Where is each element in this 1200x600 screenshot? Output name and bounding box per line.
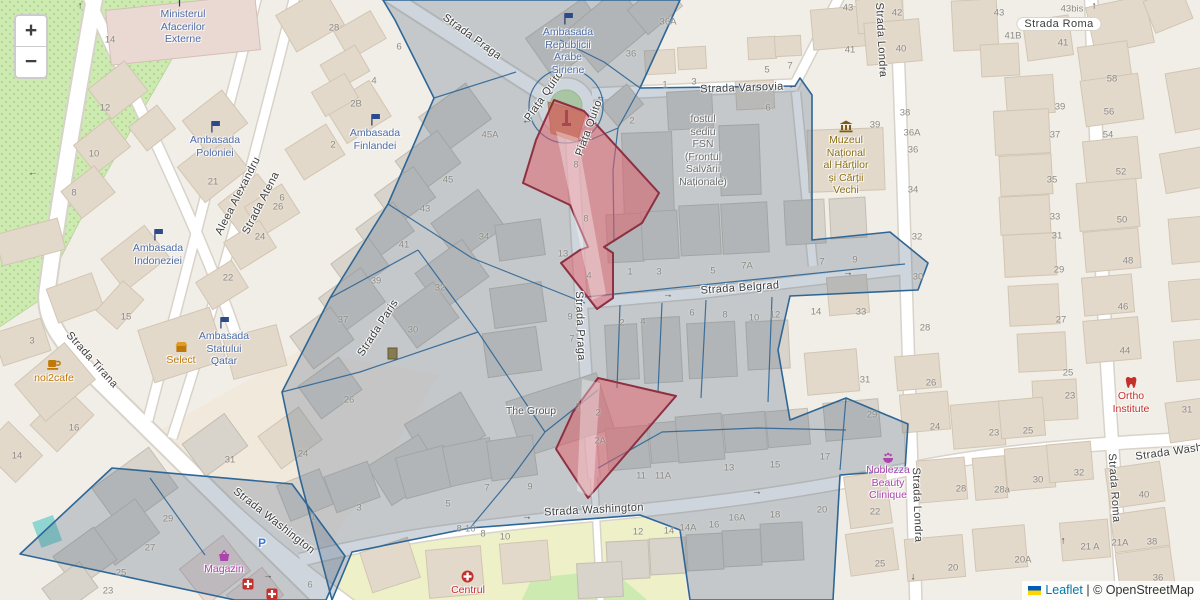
building — [1081, 274, 1134, 316]
building — [1003, 233, 1057, 278]
building — [1168, 216, 1200, 264]
attribution-separator: | — [1083, 583, 1093, 597]
building — [999, 154, 1053, 197]
building — [829, 197, 867, 239]
building — [807, 128, 885, 193]
building — [950, 401, 1006, 449]
building — [972, 456, 1008, 501]
building — [182, 90, 247, 154]
building — [577, 561, 624, 598]
building — [0, 318, 51, 366]
building — [1080, 73, 1144, 127]
zoom-control: + − — [14, 14, 48, 79]
building — [747, 36, 776, 59]
building — [844, 471, 893, 528]
building — [1083, 317, 1141, 364]
building — [1110, 507, 1170, 552]
building — [1083, 228, 1141, 273]
ukraine-flag-icon — [1028, 586, 1041, 595]
building — [916, 457, 967, 503]
building — [972, 525, 1027, 571]
map-canvas[interactable]: Strada PragaPiața QuitoPiața QuitoStrada… — [0, 0, 1200, 600]
building — [864, 19, 922, 66]
building — [951, 0, 999, 51]
building — [1059, 519, 1110, 561]
building — [677, 46, 706, 69]
attribution-bar: Leaflet | © OpenStreetMap — [1022, 581, 1200, 600]
building — [895, 353, 942, 391]
building — [1159, 146, 1200, 193]
building — [904, 535, 965, 582]
building — [101, 225, 169, 290]
overlay-polygons — [20, 0, 928, 600]
leaflet-link[interactable]: Leaflet — [1045, 583, 1083, 597]
building — [499, 540, 550, 584]
building — [1046, 441, 1093, 483]
building — [426, 546, 485, 599]
building — [138, 307, 226, 382]
building — [804, 349, 859, 395]
building — [1022, 15, 1073, 61]
building — [96, 281, 144, 329]
building — [998, 397, 1045, 439]
building — [774, 35, 801, 56]
building — [1076, 178, 1140, 231]
zoom-in-button[interactable]: + — [16, 16, 46, 47]
zoom-out-button[interactable]: − — [16, 47, 46, 77]
building — [980, 43, 1020, 77]
building — [999, 195, 1051, 236]
building — [1168, 278, 1200, 321]
building — [1082, 136, 1141, 184]
building — [1173, 338, 1200, 381]
building — [1165, 67, 1200, 133]
building — [1105, 461, 1165, 508]
building — [1165, 397, 1200, 443]
building — [993, 109, 1050, 156]
building — [285, 124, 345, 180]
building — [845, 528, 898, 576]
osm-link[interactable]: © OpenStreetMap — [1093, 583, 1194, 597]
building — [1008, 284, 1060, 327]
base-map — [0, 0, 1200, 600]
building — [1017, 332, 1067, 372]
